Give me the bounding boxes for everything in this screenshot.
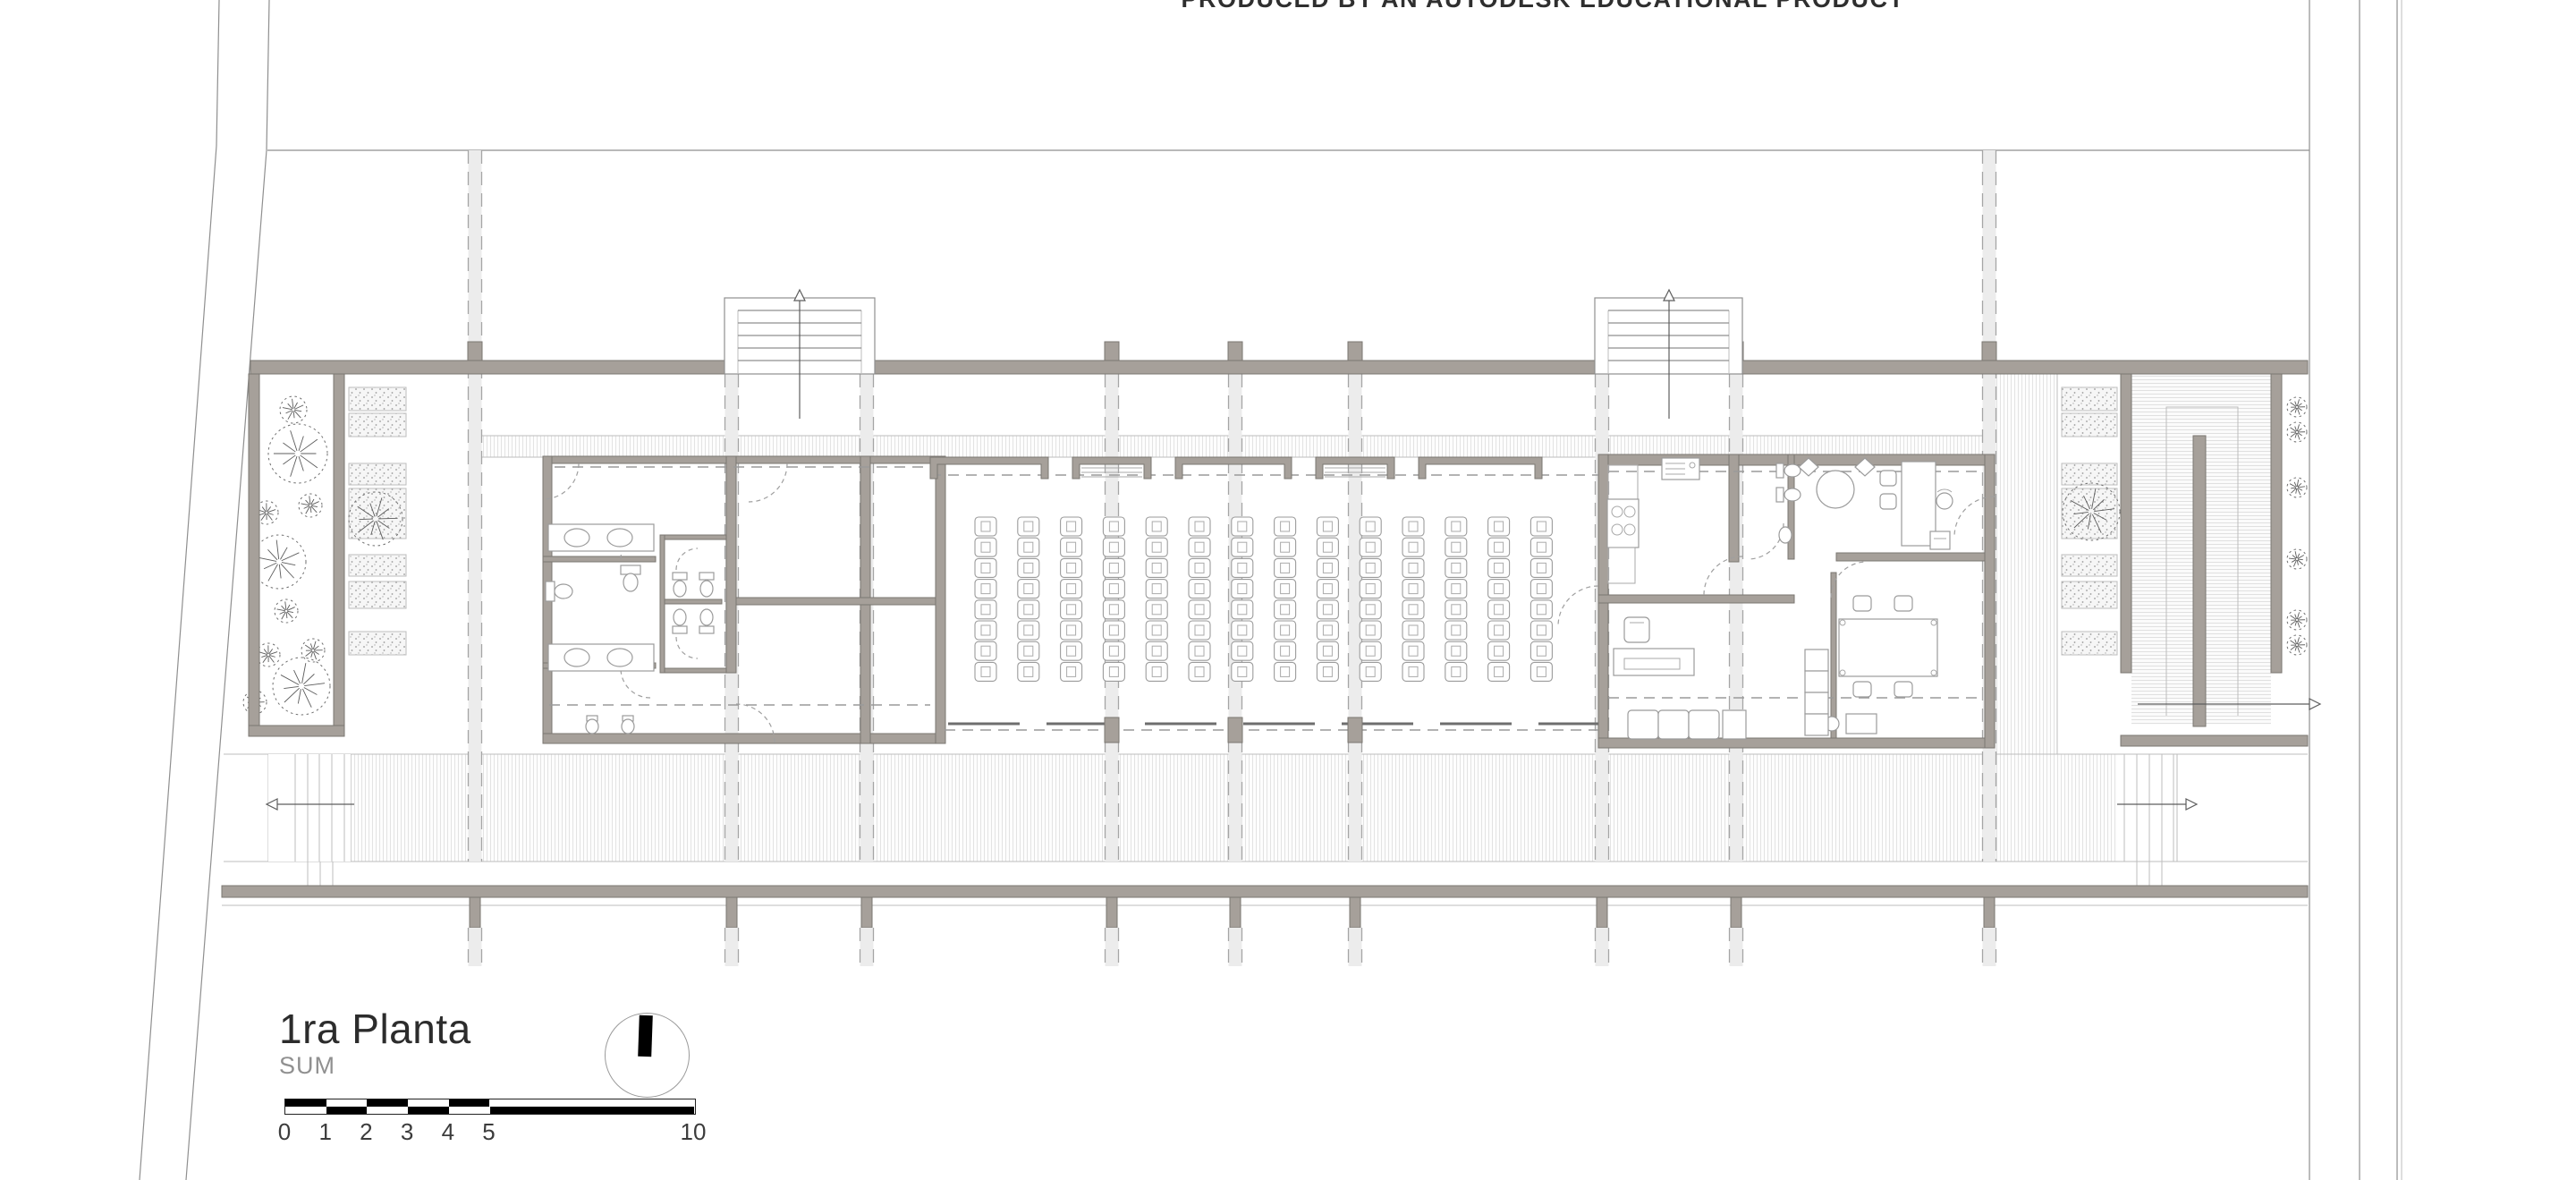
plan-subtitle: SUM: [279, 1052, 471, 1080]
interior-dashed-lines: [549, 467, 1980, 705]
scale-segment: [530, 1107, 572, 1114]
scale-segment: [408, 1099, 449, 1107]
scale-tick-label: 2: [360, 1118, 372, 1146]
scale-tick-label: 10: [681, 1118, 707, 1146]
scale-segment: [449, 1107, 490, 1114]
scale-segment: [367, 1107, 408, 1114]
scale-tick-label: 3: [401, 1118, 413, 1146]
hall-seating: [975, 517, 1552, 681]
scale-tick-label: 5: [482, 1118, 495, 1146]
scale-segment: [613, 1099, 654, 1107]
scale-tick-label: 1: [318, 1118, 331, 1146]
scale-segment: [653, 1107, 694, 1114]
scale-segment: [490, 1107, 531, 1114]
terrace-stair-east: [2117, 754, 2197, 886]
scale-bar-labels: 01234510: [284, 1118, 705, 1145]
scale-segment: [572, 1107, 613, 1114]
meeting-room-furniture: [1825, 596, 1937, 734]
scale-segment: [326, 1099, 368, 1107]
scale-bar: [284, 1099, 696, 1115]
scale-tick-label: 4: [442, 1118, 454, 1146]
north-needle: [638, 1015, 653, 1057]
scale-segment: [490, 1099, 531, 1107]
lounge-furniture: [1614, 617, 1828, 739]
floor-plan-sheet: PRODUCED BY AN AUTODESK EDUCATIONAL PROD…: [0, 0, 2576, 1180]
scale-segment: [326, 1107, 368, 1114]
entry-stair-east: [1595, 290, 1742, 419]
scale-tick-label: 0: [278, 1118, 291, 1146]
plan-title: 1ra Planta: [279, 1007, 471, 1050]
east-corridor-deck: [1996, 374, 2057, 754]
scale-segment: [572, 1099, 613, 1107]
scale-segment: [285, 1107, 326, 1114]
hall-acoustic-panels: [930, 457, 1598, 479]
entry-stair-west: [724, 290, 875, 419]
scale-segment: [530, 1099, 572, 1107]
scale-segment: [653, 1099, 694, 1107]
floor-plan-drawing: [0, 0, 2576, 1180]
scale-segment: [408, 1107, 449, 1114]
scale-segment: [285, 1099, 326, 1107]
terrace-stair-west: [267, 754, 354, 886]
north-arrow-icon: [605, 1013, 690, 1098]
bathroom-fixtures: [546, 524, 714, 734]
kitchen-fixtures: [1607, 458, 1801, 583]
scale-segment: [613, 1107, 654, 1114]
scale-segment: [367, 1099, 408, 1107]
title-block: 1ra Planta SUM: [279, 1007, 471, 1080]
office-furniture: [1799, 458, 1953, 549]
scale-segment: [449, 1099, 490, 1107]
hall-south-edge: [945, 717, 1598, 743]
